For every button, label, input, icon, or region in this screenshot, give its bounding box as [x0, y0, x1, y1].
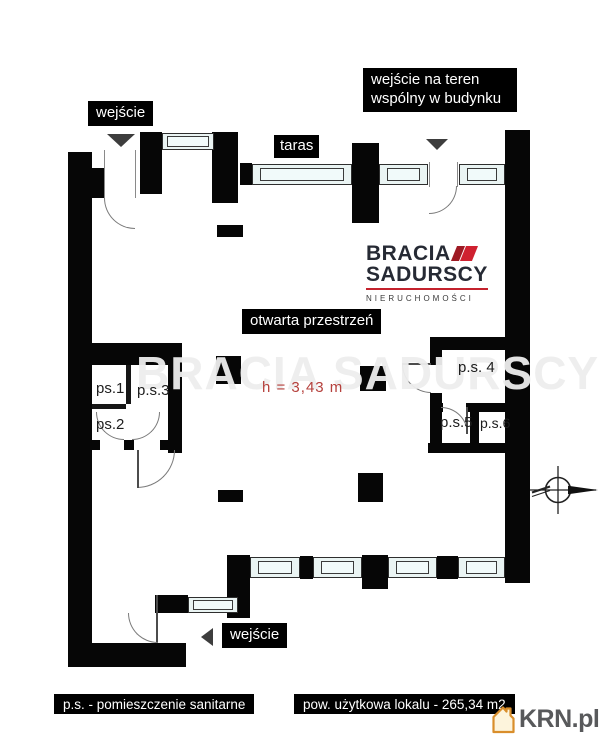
door-leaf — [137, 450, 139, 488]
door-arc — [137, 450, 175, 488]
wall-exit-block — [155, 595, 188, 613]
door-arc — [128, 613, 158, 643]
entrance-top-arrow-icon — [107, 134, 135, 147]
agency-name-line2: SADURSCY — [366, 264, 488, 286]
wall-bottom-left — [68, 643, 186, 667]
entrance-common-label: wejście na teren wspólny w budynku — [363, 68, 517, 112]
wall-mullion — [437, 556, 458, 579]
door-arc — [429, 186, 457, 214]
window — [379, 164, 428, 185]
wall-ps1-ps2-divider — [92, 404, 126, 409]
window — [313, 557, 362, 578]
wall-terrace-stub — [240, 163, 252, 185]
window — [162, 133, 214, 150]
window — [388, 557, 437, 578]
wall-segment — [466, 403, 505, 412]
wall-ps-right-bottom — [428, 443, 505, 453]
column — [358, 473, 383, 502]
open-space-label: otwarta przestrzeń — [242, 309, 381, 334]
door-arc — [132, 412, 160, 440]
ceiling-height-note: h = 3,43 m — [262, 379, 343, 396]
wall-jamb — [92, 168, 104, 198]
legend-sanitary: p.s. - pomieszczenie sanitarne — [54, 694, 254, 714]
entrance-top-label: wejście — [88, 101, 153, 126]
wall-top-a — [140, 132, 162, 194]
legend-usable-area: pow. użytkowa lokalu - 265,34 m2 — [294, 694, 515, 714]
agency-logo-rule — [366, 288, 488, 290]
terrace-label: taras — [274, 135, 319, 158]
room-label-ps4: p.s. 4 — [458, 359, 495, 376]
wall-segment — [160, 440, 182, 450]
wall-mullion — [362, 555, 388, 589]
door-opening — [104, 150, 136, 198]
window — [250, 557, 300, 578]
entrance-common-arrow-icon — [426, 139, 448, 150]
agency-subtitle: NIERUCHOMOŚCI — [366, 294, 488, 303]
column — [217, 225, 243, 237]
wall-segment — [124, 440, 134, 450]
room-label-ps1: ps.1 — [96, 380, 124, 397]
door-opening — [429, 162, 458, 187]
wall-bottom-corner-right — [505, 540, 530, 583]
column-terrace — [352, 143, 379, 223]
room-label-ps5: p.s.5 — [440, 414, 473, 431]
agency-name-line1: BRACIA — [366, 243, 451, 264]
agency-watermark: BRACIA SADURSCY — [136, 346, 599, 400]
window — [188, 597, 238, 613]
floor-plan: wejście wejście na teren wspólny w budyn… — [0, 0, 613, 750]
agency-logo-mark-icon — [454, 246, 476, 261]
portal-logo: KRN.pl — [490, 704, 599, 735]
door-arc — [104, 198, 135, 229]
window — [458, 557, 505, 578]
agency-logo: BRACIA SADURSCY NIERUCHOMOŚCI — [366, 243, 488, 303]
window — [252, 164, 352, 185]
room-label-ps6: p.s.6 — [480, 415, 510, 431]
portal-name: KRN.pl — [519, 705, 599, 734]
window — [459, 164, 505, 185]
room-label-ps3: p.s.3 — [137, 382, 170, 399]
column — [218, 490, 243, 502]
entrance-bottom-arrow-icon — [201, 628, 213, 646]
north-compass-icon — [520, 458, 604, 522]
wall-left — [68, 152, 92, 667]
wall-top-b — [212, 132, 238, 203]
wall-segment — [92, 440, 100, 450]
room-label-ps2: ps.2 — [96, 416, 124, 433]
entrance-bottom-label: wejście — [222, 623, 287, 648]
wall-ps1-ps3-divider — [126, 365, 131, 404]
portal-house-icon — [490, 704, 517, 735]
wall-mullion — [300, 556, 313, 579]
